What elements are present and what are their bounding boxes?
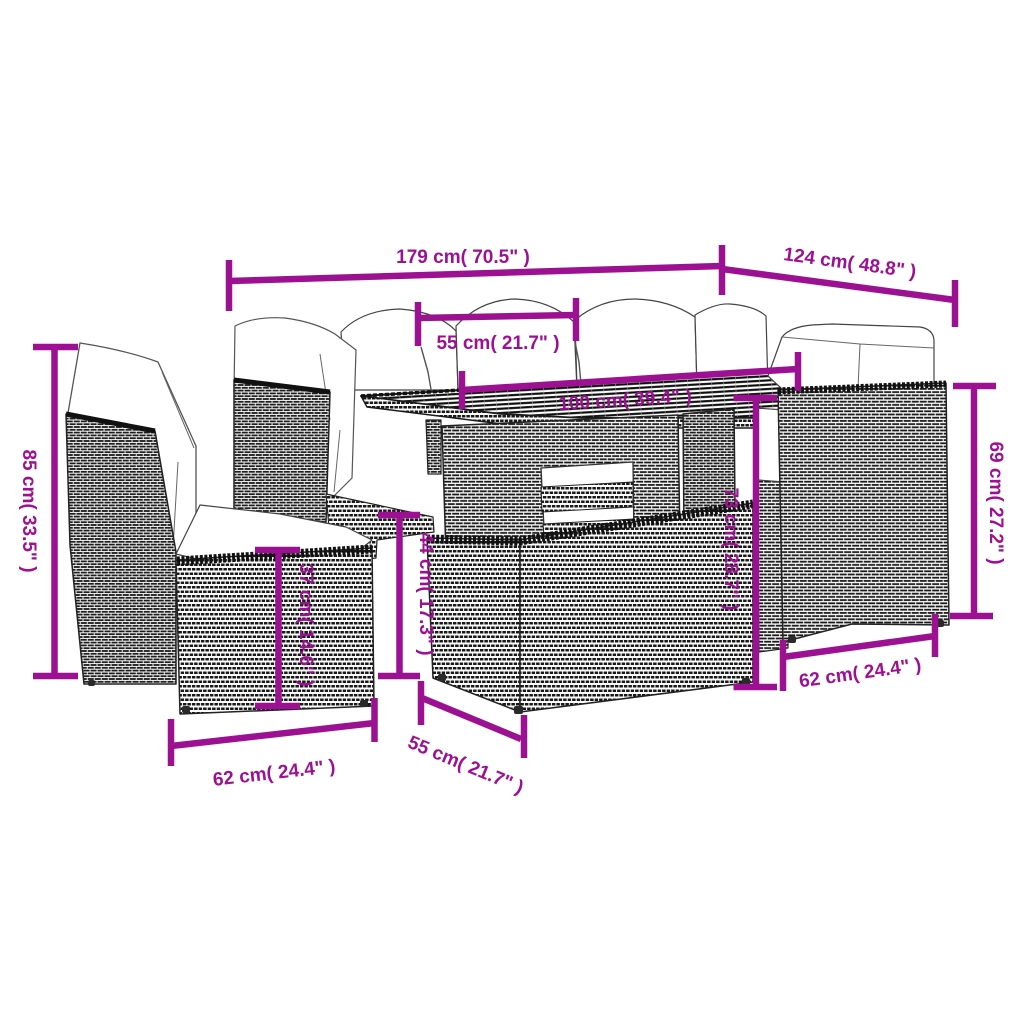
svg-text:37 cm( 14.6" ): 37 cm( 14.6" )	[295, 563, 316, 686]
svg-text:69 cm( 27.2" ): 69 cm( 27.2" )	[985, 441, 1006, 564]
svg-text:179 cm( 70.5" ): 179 cm( 70.5" )	[396, 247, 530, 268]
svg-text:73 cm( 28.7" ): 73 cm( 28.7" )	[720, 487, 741, 610]
svg-text:85 cm( 33.5" ): 85 cm( 33.5" )	[18, 449, 39, 572]
svg-text:55 cm( 21.7" ): 55 cm( 21.7" )	[436, 333, 559, 354]
svg-text:44 cm( 17.3" ): 44 cm( 17.3" )	[415, 532, 436, 655]
